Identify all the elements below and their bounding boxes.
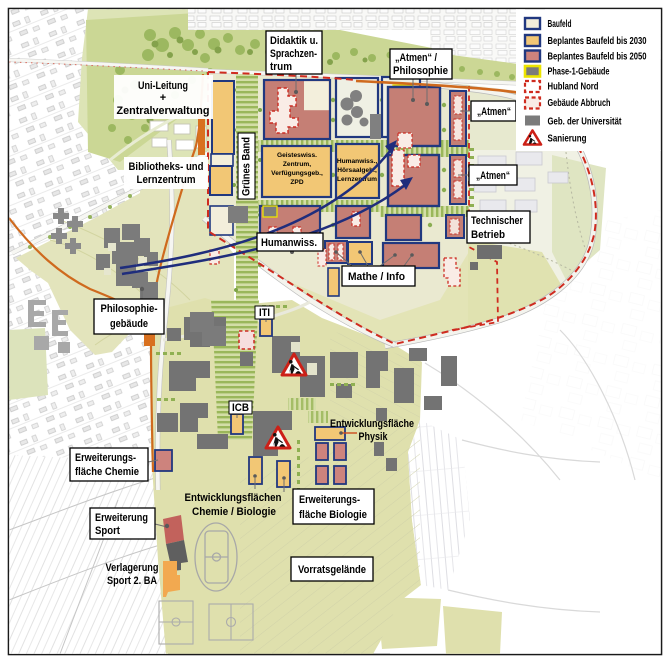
svg-text:„Atmen“: „Atmen“	[476, 170, 510, 182]
svg-text:Erweiterungs-: Erweiterungs-	[75, 452, 136, 464]
svg-text:gebäude: gebäude	[110, 318, 148, 330]
svg-text:Sanierung: Sanierung	[548, 133, 587, 145]
svg-text:Philosophie-: Philosophie-	[101, 303, 158, 315]
svg-text:ZPD: ZPD	[290, 179, 303, 186]
svg-text:Beplantes Baufeld bis 2030: Beplantes Baufeld bis 2030	[548, 35, 647, 47]
svg-text:fläche Biologie: fläche Biologie	[299, 509, 367, 521]
svg-text:Sport 2. BA: Sport 2. BA	[107, 575, 157, 587]
svg-text:Philosophie: Philosophie	[393, 65, 448, 77]
svg-text:„Atmen“: „Atmen“	[477, 106, 511, 118]
svg-text:Geb. der Universität: Geb. der Universität	[548, 116, 622, 128]
svg-text:Grünes Band: Grünes Band	[241, 137, 253, 196]
svg-text:Humanwiss.,: Humanwiss.,	[337, 158, 377, 165]
svg-text:trum: trum	[270, 61, 292, 73]
svg-text:+: +	[160, 92, 166, 104]
svg-text:fläche Chemie: fläche Chemie	[75, 466, 139, 478]
svg-text:ICB: ICB	[232, 402, 249, 414]
svg-text:Erweiterungs-: Erweiterungs-	[299, 494, 360, 506]
svg-text:Entwicklungsflächen: Entwicklungsflächen	[185, 492, 282, 504]
svg-text:Physik: Physik	[359, 431, 389, 443]
svg-text:Chemie / Biologie: Chemie / Biologie	[192, 506, 276, 518]
svg-text:Didaktik u.: Didaktik u.	[270, 35, 318, 47]
svg-text:Verfügungsgeb.,: Verfügungsgeb.,	[271, 170, 323, 177]
svg-text:Vorratsgelände: Vorratsgelände	[298, 564, 366, 576]
svg-text:Sport: Sport	[95, 525, 120, 537]
svg-text:Uni-Leitung: Uni-Leitung	[138, 80, 188, 92]
svg-text:„Atmen“ /: „Atmen“ /	[395, 52, 437, 64]
svg-text:Geisteswiss.: Geisteswiss.	[277, 152, 317, 159]
svg-text:Beplantes Baufeld bis 2050: Beplantes Baufeld bis 2050	[548, 51, 647, 63]
svg-text:Lernzentrum: Lernzentrum	[137, 174, 196, 186]
svg-text:Phase-1-Gebäude: Phase-1-Gebäude	[548, 66, 610, 78]
svg-text:Lernzentrum: Lernzentrum	[337, 176, 377, 183]
svg-text:ITI: ITI	[259, 307, 270, 319]
svg-text:Sprachzen-: Sprachzen-	[270, 48, 317, 60]
svg-text:Technischer: Technischer	[471, 215, 524, 227]
svg-text:Bibliotheks- und: Bibliotheks- und	[129, 161, 204, 173]
svg-text:Mathe / Info: Mathe / Info	[348, 271, 405, 283]
svg-text:Entwicklungsfläche: Entwicklungsfläche	[330, 418, 414, 430]
svg-text:Verlagerung: Verlagerung	[106, 562, 159, 574]
svg-text:Betrieb: Betrieb	[471, 229, 505, 241]
svg-text:Zentralverwaltung: Zentralverwaltung	[117, 105, 210, 117]
svg-text:Humanwiss.: Humanwiss.	[261, 237, 317, 249]
svg-text:Zentrum,: Zentrum,	[283, 161, 311, 168]
svg-text:Erweiterung: Erweiterung	[95, 512, 148, 524]
svg-text:Gebäude Abbruch: Gebäude Abbruch	[548, 97, 611, 109]
svg-text:Baufeld: Baufeld	[548, 18, 572, 30]
svg-text:Hubland Nord: Hubland Nord	[548, 81, 599, 93]
